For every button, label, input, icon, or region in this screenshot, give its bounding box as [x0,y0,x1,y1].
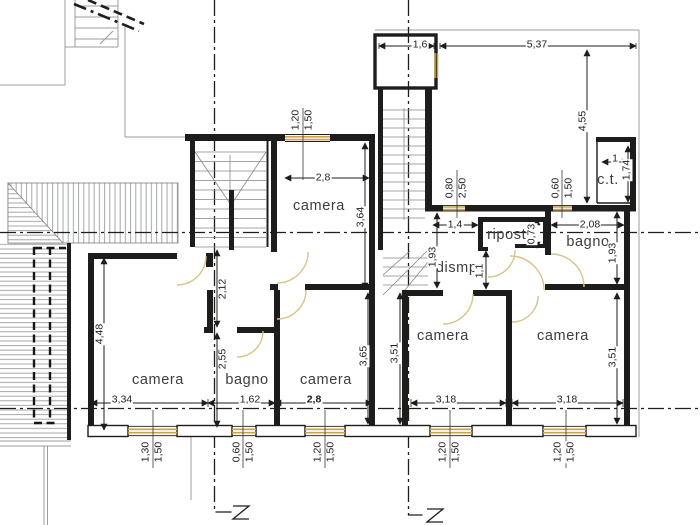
construction-lines-layer [0,0,639,525]
floor-plan-drawing [0,0,700,525]
exterior-wall-band [88,426,636,437]
walls-thin-lines [597,142,630,203]
axis-break-symbols [233,506,443,522]
roof-ridge-lines [74,0,144,31]
door-arcs-layer [177,250,584,357]
walls-layer [88,88,636,437]
page: { "drawing": { "colors": { "wall": "#1d1… [0,0,700,525]
floor-plan-canvas: cameracamerabagnocameracameracamerabagno… [0,0,700,525]
balcony-room-outline [375,35,436,88]
